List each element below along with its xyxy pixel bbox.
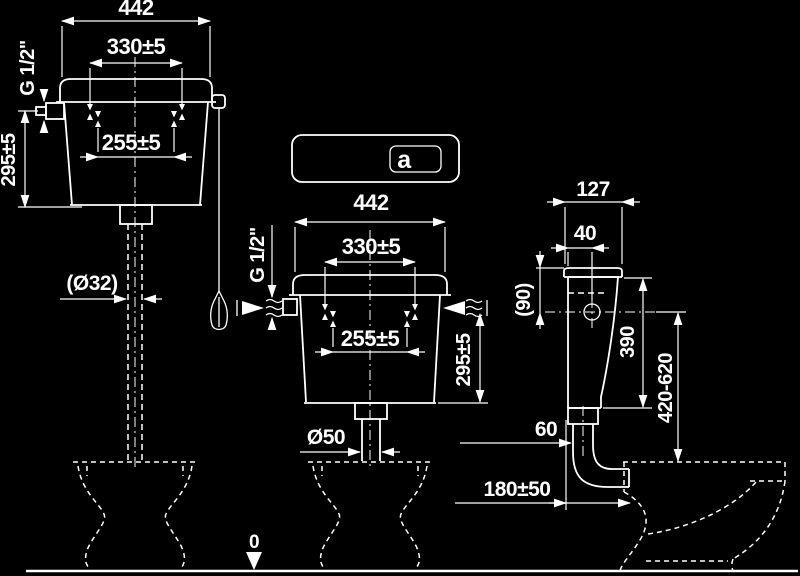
high-toilet-bowl [73, 462, 197, 571]
side-toilet-bowl [620, 462, 785, 571]
floor-level-label: 0 [249, 532, 259, 553]
low-cistern-view: 442 330±5 255±5 G 1/2" [237, 190, 488, 571]
cistern-installation-diagram: 0 442 330±5 255±5 [0, 0, 800, 576]
dim-high-inlet-height: 295±5 [0, 133, 20, 186]
dim-high-flushpipe-diameter: (Ø32) [66, 272, 117, 295]
datum-arrow-icon [246, 552, 262, 570]
dim-high-upper-holes: 330±5 [107, 34, 166, 59]
dim-side-outlet-offset: 60 [535, 418, 557, 441]
label-low-inlet-thread: G 1/2" [247, 227, 269, 282]
dim-low-upper-holes: 330±5 [342, 234, 401, 259]
dim-side-bowl-distance: 180±50 [484, 478, 551, 501]
dim-side-inlet-offset: 40 [574, 222, 596, 245]
dim-side-inlet-from-top: (90) [513, 283, 535, 317]
label-high-inlet-thread: G 1/2" [17, 40, 39, 95]
high-cistern-view: 442 330±5 255±5 G 1/2" 295±5 [0, 0, 227, 571]
dim-side-tank-height: 390 [617, 326, 639, 358]
brand-logo-letter: a [397, 146, 412, 174]
low-toilet-bowl [308, 462, 432, 571]
side-view: 127 40 (90) 390 420-620 [455, 178, 785, 571]
dim-low-overall-width: 442 [353, 190, 388, 215]
dim-low-inlet-height: 295±5 [453, 333, 475, 386]
technical-drawing-canvas: 0 442 330±5 255±5 [0, 0, 800, 576]
dim-low-lower-holes: 255±5 [341, 326, 400, 351]
dim-side-depth: 127 [576, 178, 610, 201]
dim-side-flushpipe-range: 420-620 [655, 353, 677, 423]
dim-low-outlet-diameter: Ø50 [307, 426, 345, 449]
dim-high-lower-holes: 255±5 [102, 130, 161, 155]
dim-high-overall-width: 442 [118, 0, 153, 20]
water-inlet-right-icon [443, 300, 487, 317]
lid-front-view: a [292, 135, 459, 182]
water-inlet-left-icon [237, 300, 282, 317]
